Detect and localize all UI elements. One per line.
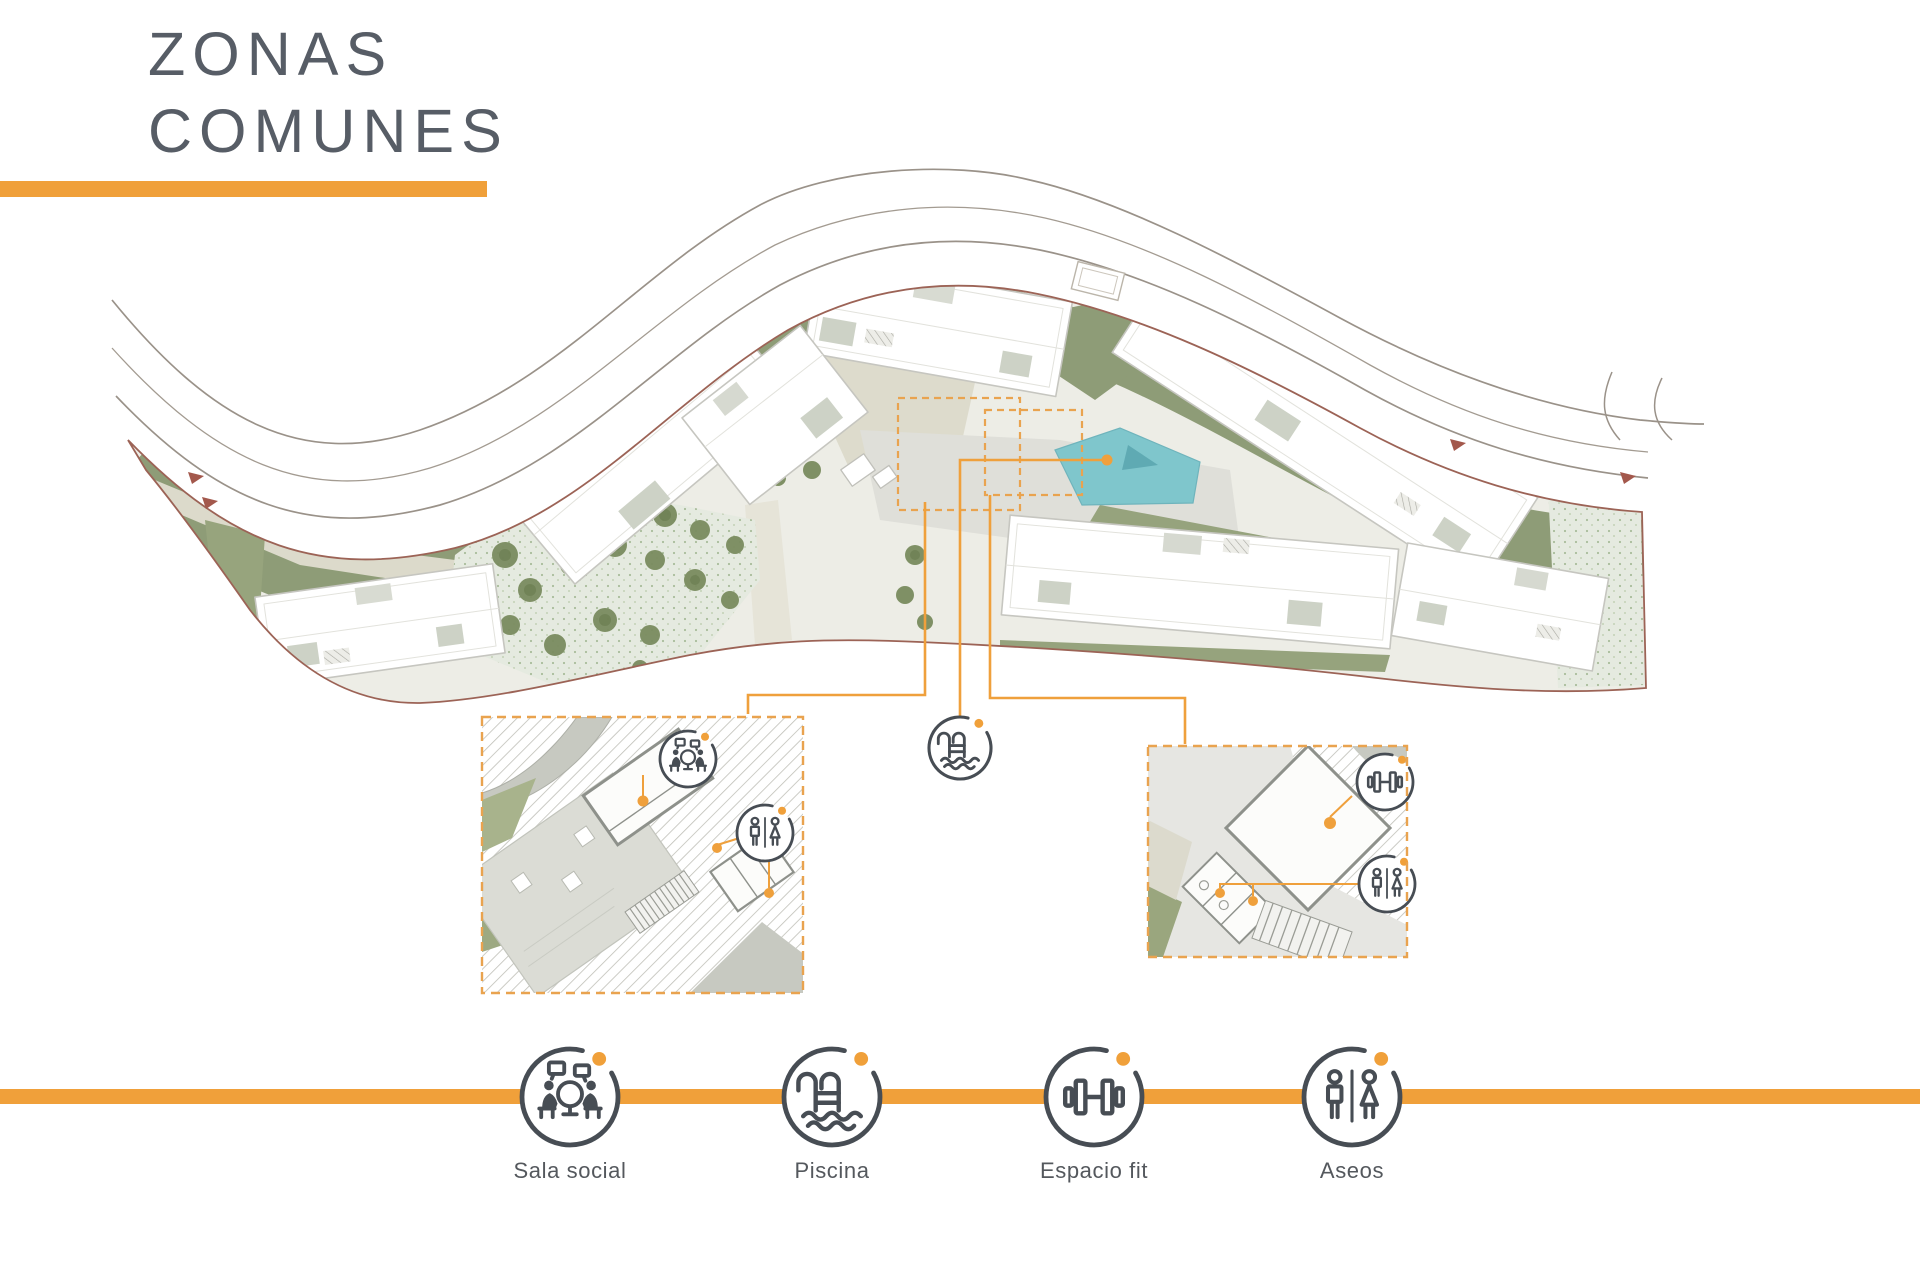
legend [0,1049,1920,1145]
legend-accent-bar [0,1089,1920,1104]
site-plan-graphic [0,0,1920,1280]
legend-label-sala-social: Sala social [440,1158,700,1184]
gym-badge [1357,754,1413,810]
legend-label-aseos: Aseos [1222,1158,1482,1184]
legend-icon-espacio-fit [1046,1049,1142,1145]
wc-badge-left [737,805,793,861]
site-plan [112,169,1704,779]
legend-label-espacio-fit: Espacio fit [964,1158,1224,1184]
sala-social-badge [660,731,716,787]
legend-icon-piscina [784,1049,880,1145]
right-detail-inset [1148,746,1415,970]
legend-icon-aseos [1304,1049,1400,1145]
site-entrance [1071,262,1124,301]
legend-icon-sala-social [522,1049,618,1145]
left-detail-inset [457,717,805,997]
legend-label-piscina: Piscina [702,1158,962,1184]
brochure-page: ZONAS COMUNES [0,0,1920,1280]
pool-marker-dot [1102,455,1113,466]
pool-icon-badge [929,717,991,779]
